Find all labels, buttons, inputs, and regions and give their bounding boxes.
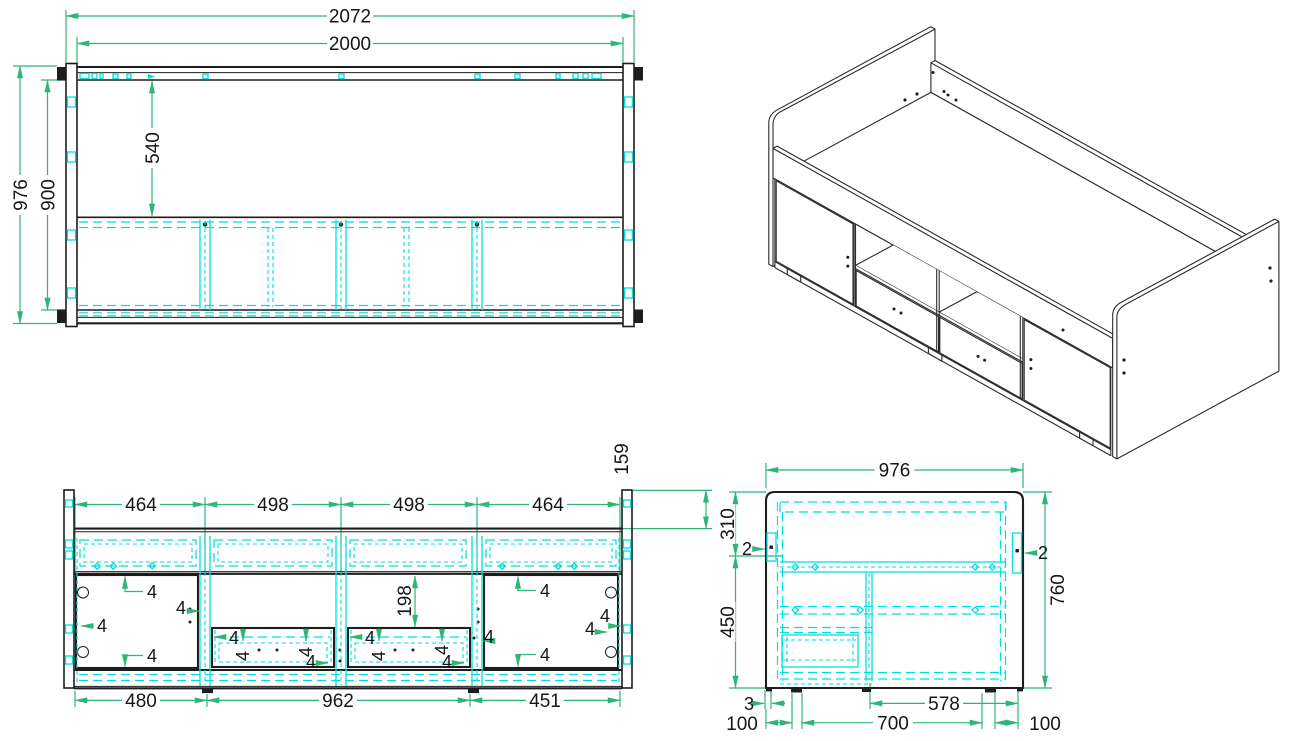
front-left-door	[76, 575, 198, 668]
gap-label: 4	[540, 581, 550, 601]
dim-overall-depth: 976	[11, 179, 32, 211]
gap-label: 4	[229, 628, 239, 648]
side-foot	[985, 688, 996, 693]
side-foot	[791, 688, 802, 693]
side-view-hidden-lines	[767, 502, 1022, 684]
top-view-plan: 2072 2000 976 900 540	[11, 7, 643, 327]
dim-left-inset: 100	[726, 714, 758, 735]
dim-lower-offset: 450	[718, 606, 739, 638]
drawing-sheet: 2072 2000 976 900 540	[0, 0, 1301, 741]
gap-label: 4	[97, 616, 107, 636]
top-view-dimensions: 2072 2000 976 900 540	[11, 7, 634, 324]
dim-clearance: 578	[928, 694, 960, 715]
gap-label: 4	[147, 646, 157, 666]
dim-bottom-1: 480	[125, 691, 157, 712]
dim-right-inset: 100	[1029, 714, 1061, 735]
dim-deck-depth: 540	[143, 132, 164, 164]
gap-label: 4	[147, 582, 157, 602]
front-foot	[202, 688, 213, 693]
side-view: 976 310 450 760 2 2 3 578 100 700 100	[718, 461, 1069, 736]
dim-bottom-2: 962	[322, 691, 354, 712]
gap-label: 4	[442, 652, 452, 672]
side-foot	[862, 688, 871, 692]
gap-label: 4	[369, 651, 389, 661]
dim-connector: 2	[742, 539, 752, 559]
gap-label: 4	[233, 651, 253, 661]
front-view-gap-callouts: 4 4 4 4 4 4 4 4 4 4 4 4 4 4 4 4 4	[81, 577, 621, 673]
dim-connector: 2	[1038, 543, 1048, 563]
gap-label: 4	[484, 627, 494, 647]
front-right-door	[484, 575, 618, 668]
front-foot	[468, 688, 479, 693]
dim-section-3: 498	[393, 495, 425, 516]
dim-bottom-3: 451	[529, 691, 561, 712]
dim-section-4: 464	[532, 495, 564, 516]
top-view-outline	[57, 64, 643, 327]
gap-label: 4	[176, 598, 186, 618]
hinge-hole	[606, 647, 617, 658]
dim-overall-width: 2072	[329, 7, 371, 28]
front-view-dimensions: 464 498 498 464 159 198 480 962 451	[75, 443, 712, 712]
dim-side-width: 976	[879, 461, 911, 482]
dim-foot-span: 700	[877, 714, 909, 735]
hinge-hole	[78, 587, 89, 598]
dim-height: 760	[1048, 574, 1069, 606]
isometric-view	[769, 27, 1279, 459]
side-view-outline	[766, 492, 1023, 693]
dim-section-2: 498	[257, 495, 289, 516]
dim-opening-height: 198	[395, 585, 416, 617]
dim-inner-depth: 900	[39, 179, 60, 211]
gap-label: 4	[306, 652, 316, 672]
gap-label: 4	[600, 606, 610, 626]
hinge-hole	[606, 587, 617, 598]
dim-rail-height: 159	[612, 443, 633, 475]
front-view: 464 498 498 464 159 198 480 962 451	[64, 443, 712, 712]
gap-label: 4	[365, 628, 375, 648]
technical-drawing: 2072 2000 976 900 540	[0, 0, 1301, 741]
dim-base-gap: 3	[744, 694, 754, 714]
gap-label: 4	[540, 645, 550, 665]
dim-inner-width: 2000	[329, 34, 371, 55]
hinge-hole	[78, 647, 89, 658]
dim-section-1: 464	[125, 495, 157, 516]
dim-upper-offset: 310	[718, 508, 739, 540]
gap-label: 4	[585, 619, 595, 639]
